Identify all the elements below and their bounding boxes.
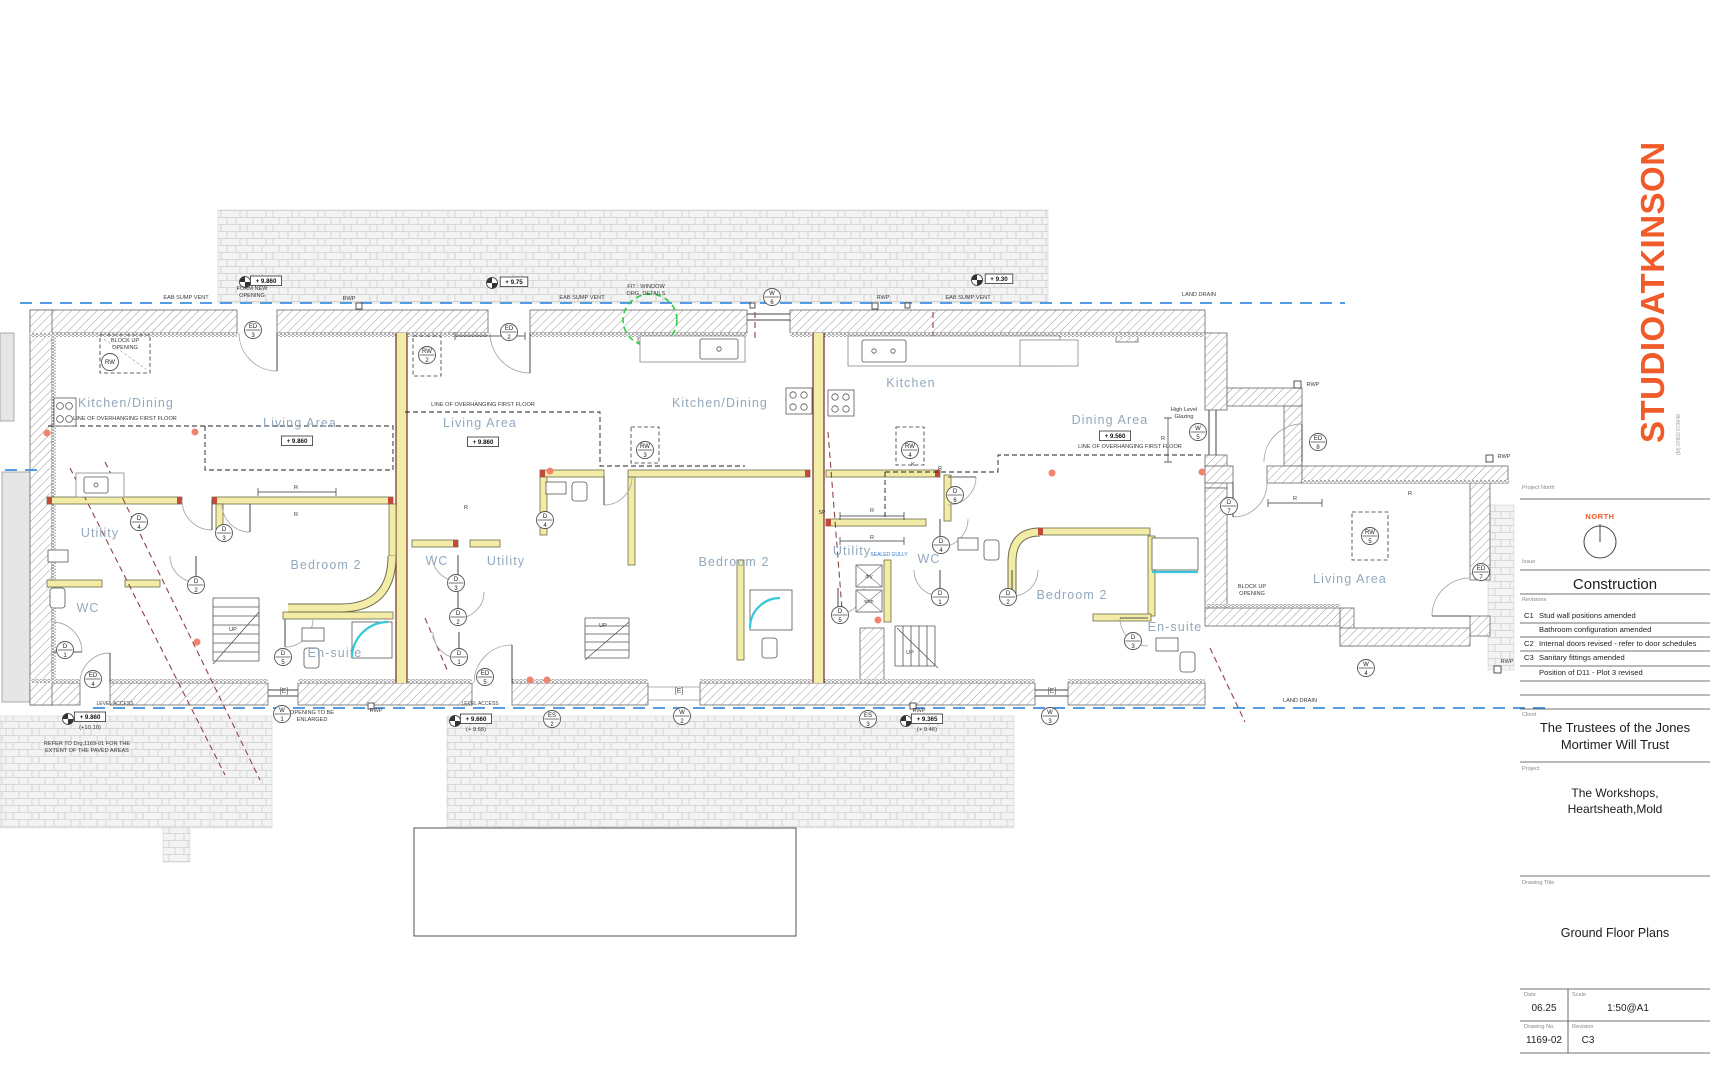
studio-phone: (M) 07803 673648 <box>1676 414 1682 455</box>
north-label: NORTH <box>1520 512 1680 521</box>
drawing-no-label: Drawing No. <box>1524 1024 1555 1030</box>
annotation: R <box>1293 496 1297 502</box>
room-label: En-suite <box>308 646 363 660</box>
annotation: RWP <box>877 295 890 301</box>
ref-tag-type: ED <box>1314 436 1323 442</box>
floor-plan-canvas: Kitchen/DiningLiving AreaUtilityWCBedroo… <box>0 0 1715 1086</box>
level-value: + 9.365 <box>917 716 938 723</box>
annotation: OPENING TO BE <box>290 710 334 716</box>
ref-tag-type: ED <box>505 326 514 332</box>
level-existing-value: (+ 9.65) <box>466 727 486 733</box>
paved-area-outline <box>414 828 796 936</box>
issue-value: Construction <box>1520 576 1710 593</box>
revision-row: Bathroom configuration amended <box>1524 625 1710 634</box>
land-drain-lines <box>5 303 1553 708</box>
room-label: Bedroom 2 <box>1036 588 1107 602</box>
annotation: EAB SUMP VENT <box>945 295 991 301</box>
ref-tag-type: W <box>279 708 285 714</box>
annotation: LINE OF OVERHANGING FIRST FLOOR <box>73 416 177 422</box>
room-label: En-suite <box>1148 620 1203 634</box>
door-swings <box>52 333 1470 683</box>
annotation: FIT : WINDOW <box>627 284 665 290</box>
ref-tag-type: W <box>1047 710 1053 716</box>
level-value: + 9.860 <box>473 439 494 446</box>
annotation: LEVEL ACCESS <box>461 701 499 707</box>
annotation: R <box>294 485 298 491</box>
client-label: Client <box>1522 712 1536 718</box>
annotation: EAB SUMP VENT <box>559 295 605 301</box>
level-value: + 9.560 <box>1105 433 1126 440</box>
annotation: RWP <box>343 296 356 302</box>
annotation: RWP <box>913 708 926 714</box>
ref-tag-type: RW <box>640 444 650 450</box>
drawing-title-label: Drawing Title <box>1522 880 1554 886</box>
ref-tag-type: ED <box>249 324 258 330</box>
ref-tag-type: W <box>1195 426 1201 432</box>
ref-tag-type: ES <box>548 713 556 719</box>
ref-tag-type: RW <box>1365 530 1375 536</box>
revision-code: C1 <box>1524 611 1539 620</box>
revision-row: C2Internal doors revised - refer to door… <box>1524 639 1710 648</box>
party-walls <box>396 333 824 683</box>
survey-dots <box>44 429 1206 684</box>
annotation: SEALED GULLY <box>870 552 908 558</box>
annotation: EXTENT OF THE PAVED AREAS <box>45 748 129 754</box>
ref-tag-type: D <box>838 609 843 615</box>
ref-tag-type: D <box>1131 635 1136 641</box>
ref-tag-type: RW <box>905 444 915 450</box>
client-name-line1: The Trustees of the Jones <box>1520 720 1710 735</box>
level-value: + 9.860 <box>80 714 101 721</box>
rw-dashed-boxes <box>100 335 1388 560</box>
room-label: Kitchen/Dining <box>672 396 768 410</box>
annotation: OPENING <box>112 345 138 351</box>
ref-tag-type: D <box>457 651 462 657</box>
ref-tag-type: D <box>454 577 459 583</box>
ref-tag-type: RW <box>422 349 432 355</box>
ref-tag-type: D <box>938 591 943 597</box>
annotation: Glazing <box>1175 414 1194 420</box>
room-label: Kitchen/Dining <box>78 396 174 410</box>
ref-tag-type: D <box>1227 500 1232 506</box>
annotation: REFER TO Drg.1169-01 FOR THE <box>44 741 131 747</box>
ref-tag-type: D <box>543 514 548 520</box>
room-label: Living Area <box>1313 572 1387 586</box>
room-label: Dining Area <box>1072 413 1149 427</box>
annotation: UP <box>906 650 914 656</box>
room-label: Bedroom 2 <box>698 555 769 569</box>
room-label: Kitchen <box>886 376 935 390</box>
annotation: R <box>870 508 874 514</box>
date-label: Date <box>1524 992 1536 998</box>
revision-value: C3 <box>1568 1035 1608 1046</box>
drawing-sheet: Kitchen/DiningLiving AreaUtilityWCBedroo… <box>0 0 1715 1086</box>
annotation: w/m <box>864 599 873 605</box>
annotation: High Level <box>1171 407 1197 413</box>
revision-text: Bathroom configuration amended <box>1539 625 1651 634</box>
project-north-label: Project North <box>1522 485 1555 491</box>
annotation: LINE OF OVERHANGING FIRST FLOOR <box>1078 444 1182 450</box>
revision-label: Revision <box>1572 1024 1593 1030</box>
door-leaves <box>52 333 1470 683</box>
ref-tag-type: D <box>456 611 461 617</box>
date-value: 06.25 <box>1520 1003 1568 1014</box>
ref-tag-type: W <box>679 710 685 716</box>
annotation: R <box>1161 436 1165 442</box>
room-label: Living Area <box>443 416 517 430</box>
issue-label: Issue <box>1522 559 1535 565</box>
revision-row: Position of D11 - Plot 3 revised <box>1524 668 1710 677</box>
annotation: RWP <box>1501 659 1514 665</box>
level-value: + 9.860 <box>287 438 308 445</box>
revisions-label: Revisions <box>1522 597 1546 603</box>
annotation: dry <box>866 574 873 580</box>
existing-walls <box>0 333 32 702</box>
revision-code: C2 <box>1524 639 1539 648</box>
ref-tag-type: ED <box>481 671 490 677</box>
annotation: R <box>1408 491 1412 497</box>
room-label: WC <box>917 552 940 566</box>
annotation: LINE OF OVERHANGING FIRST FLOOR <box>431 402 535 408</box>
annotation: [E] <box>280 688 289 695</box>
annotation: LEVEL ACCESS <box>96 701 134 707</box>
annotation: [E] <box>1048 688 1057 695</box>
revision-text: Sanitary fittings amended <box>1539 653 1625 662</box>
project-name-line2: Heartsheath,Mold <box>1520 802 1710 816</box>
drawing-no-value: 1169-02 <box>1520 1035 1568 1046</box>
annotation: BLOCK UP <box>1238 584 1267 590</box>
annotation: DRG. DETAILS <box>627 291 666 297</box>
red-dashed-lines <box>70 312 1245 780</box>
annotation: ENLARGED <box>297 717 328 723</box>
revision-code: C3 <box>1524 653 1539 662</box>
north-compass <box>1584 524 1616 558</box>
studio-logo: STUDIOATKINSON <box>1634 141 1672 443</box>
ref-tag-type: RW <box>105 360 115 366</box>
level-existing-value: (+10.10) <box>79 725 101 731</box>
room-label: Utility <box>81 526 119 540</box>
revision-text: Stud wall positions amended <box>1539 611 1636 620</box>
annotation: SP <box>819 510 826 516</box>
annotation: R <box>870 535 874 541</box>
annotation: [E] <box>675 688 684 695</box>
ref-tag-type: W <box>769 291 775 297</box>
annotation: OPENING <box>239 293 265 299</box>
project-name-line1: The Workshops, <box>1520 786 1710 800</box>
level-value: + 9.660 <box>466 716 487 723</box>
room-label: Utility <box>833 544 871 558</box>
ref-tag-type: D <box>222 527 227 533</box>
ref-tag-type: D <box>1006 591 1011 597</box>
annotation: BLOCK UP <box>111 338 140 344</box>
scale-label: Scale <box>1572 992 1586 998</box>
client-name-line2: Mortimer Will Trust <box>1520 737 1710 752</box>
room-label: Living Area <box>263 416 337 430</box>
room-label: WC <box>425 554 448 568</box>
revision-text: Internal doors revised - refer to door s… <box>1539 639 1696 648</box>
annotation: EAB SUMP VENT <box>163 295 209 301</box>
room-label: Bedroom 2 <box>290 558 361 572</box>
level-value: + 9.30 <box>990 276 1008 283</box>
annotation: RWP <box>370 708 383 714</box>
revision-row: C3Sanitary fittings amended <box>1524 653 1710 662</box>
scale-value: 1:50@A1 <box>1568 1003 1688 1014</box>
annotation: UP <box>229 627 237 633</box>
level-existing-value: (+ 9.46) <box>917 727 937 733</box>
ref-tag-type: W <box>1363 662 1369 668</box>
annotation: LAND DRAIN <box>1182 292 1216 298</box>
ref-tag-type: D <box>281 651 286 657</box>
wall-speckle <box>30 333 1508 683</box>
annotation: FORM NEW <box>236 286 268 292</box>
drawing-title: Ground Floor Plans <box>1520 926 1710 940</box>
ref-tag-type: ED <box>1477 566 1486 572</box>
annotation: LAND DRAIN <box>1283 698 1317 704</box>
annotation: RWP <box>1307 382 1320 388</box>
room-label: WC <box>76 601 99 615</box>
annotation: R <box>464 505 468 511</box>
annotation: R <box>938 466 942 472</box>
annotation: R <box>294 512 298 518</box>
level-marker-glyphs <box>63 275 983 727</box>
level-value: + 9.860 <box>256 278 277 285</box>
annotation: K <box>911 462 915 468</box>
ref-tag-type: D <box>953 489 958 495</box>
ref-tag-type: D <box>939 539 944 545</box>
revision-text: Position of D11 - Plot 3 revised <box>1539 668 1643 677</box>
annotation: UP <box>599 623 607 629</box>
annotation: RWP <box>1498 454 1511 460</box>
ref-tag-type: ED <box>89 673 98 679</box>
project-label: Project <box>1522 766 1539 772</box>
ref-tag-type: D <box>194 579 199 585</box>
ref-tag-type: D <box>137 516 142 522</box>
ref-tag-type: D <box>63 644 68 650</box>
annotation: OPENING <box>1239 591 1265 597</box>
ref-tag-type: ES <box>864 713 872 719</box>
revision-row: C1Stud wall positions amended <box>1524 611 1710 620</box>
room-label: Utility <box>487 554 525 568</box>
level-value: + 9.75 <box>505 279 523 286</box>
